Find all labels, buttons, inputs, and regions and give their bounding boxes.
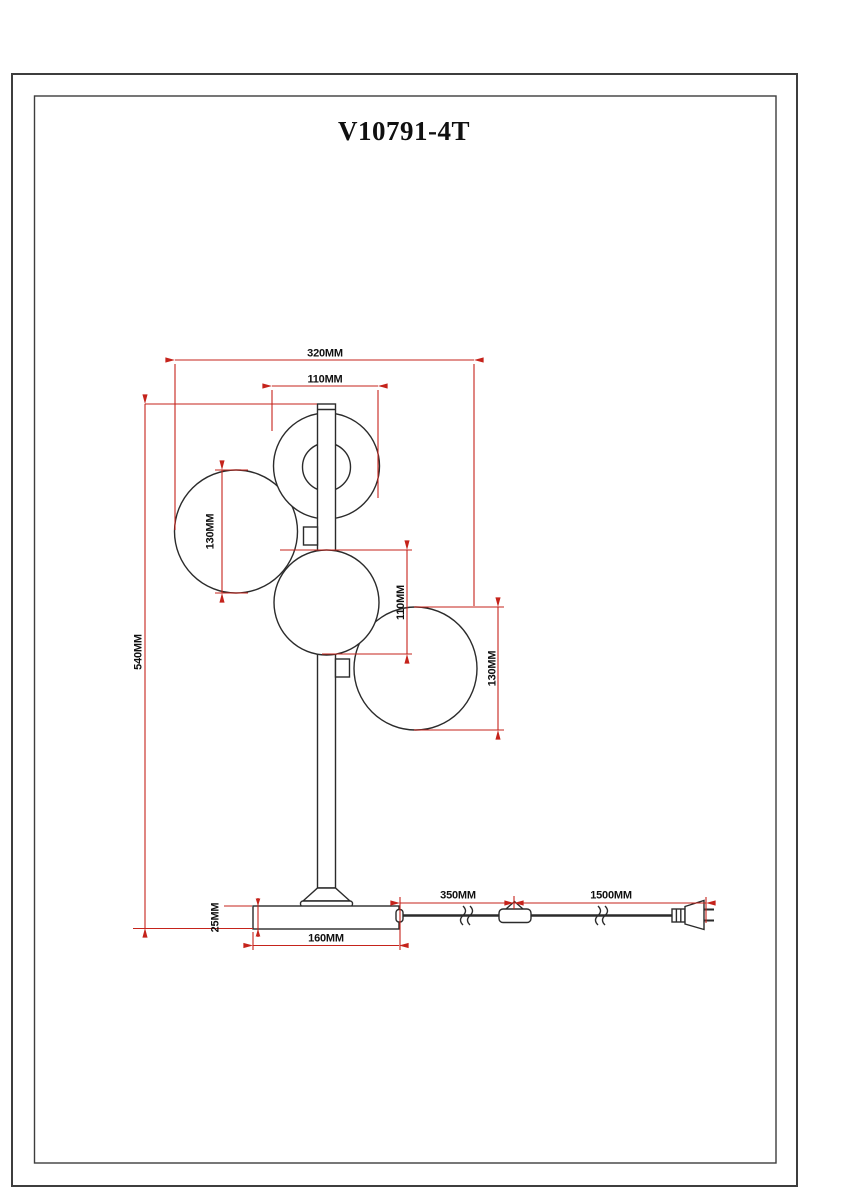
plug-strain-relief [672, 909, 685, 922]
lamp-technical-drawing: V10791-4T [0, 0, 848, 1200]
lamp-figure [175, 404, 715, 930]
drawing-title: V10791-4T [338, 116, 470, 146]
inline-switch [499, 909, 531, 923]
dim-base-width-label: 160MM [308, 933, 344, 945]
drawing-page: V10791-4T [0, 0, 848, 1200]
dim-cord-to-switch-label: 350MM [440, 890, 476, 902]
left-globe-socket [304, 527, 318, 545]
plug-drawing [672, 901, 714, 930]
pole-base-flare [303, 888, 350, 901]
dim-base-width: 160MM [253, 932, 399, 950]
plug-body [685, 901, 704, 930]
dim-switch-to-plug-label: 1500MM [590, 890, 632, 902]
dim-total-width-label: 320MM [307, 348, 343, 360]
dim-cord-to-switch: 350MM [400, 890, 514, 951]
dim-top-globe-label: 110MM [307, 374, 342, 386]
dim-base-thickness-label: 25MM [210, 903, 222, 933]
middle-globe-outline [274, 550, 379, 655]
dim-total-height-label: 540MM [133, 634, 145, 670]
right-globe-socket [336, 659, 350, 677]
lamp-base [253, 906, 399, 929]
dim-middle-globe-label: 110MM [395, 585, 407, 620]
dim-right-globe-label: 130MM [487, 651, 499, 687]
dim-left-globe-label: 130MM [205, 514, 217, 550]
